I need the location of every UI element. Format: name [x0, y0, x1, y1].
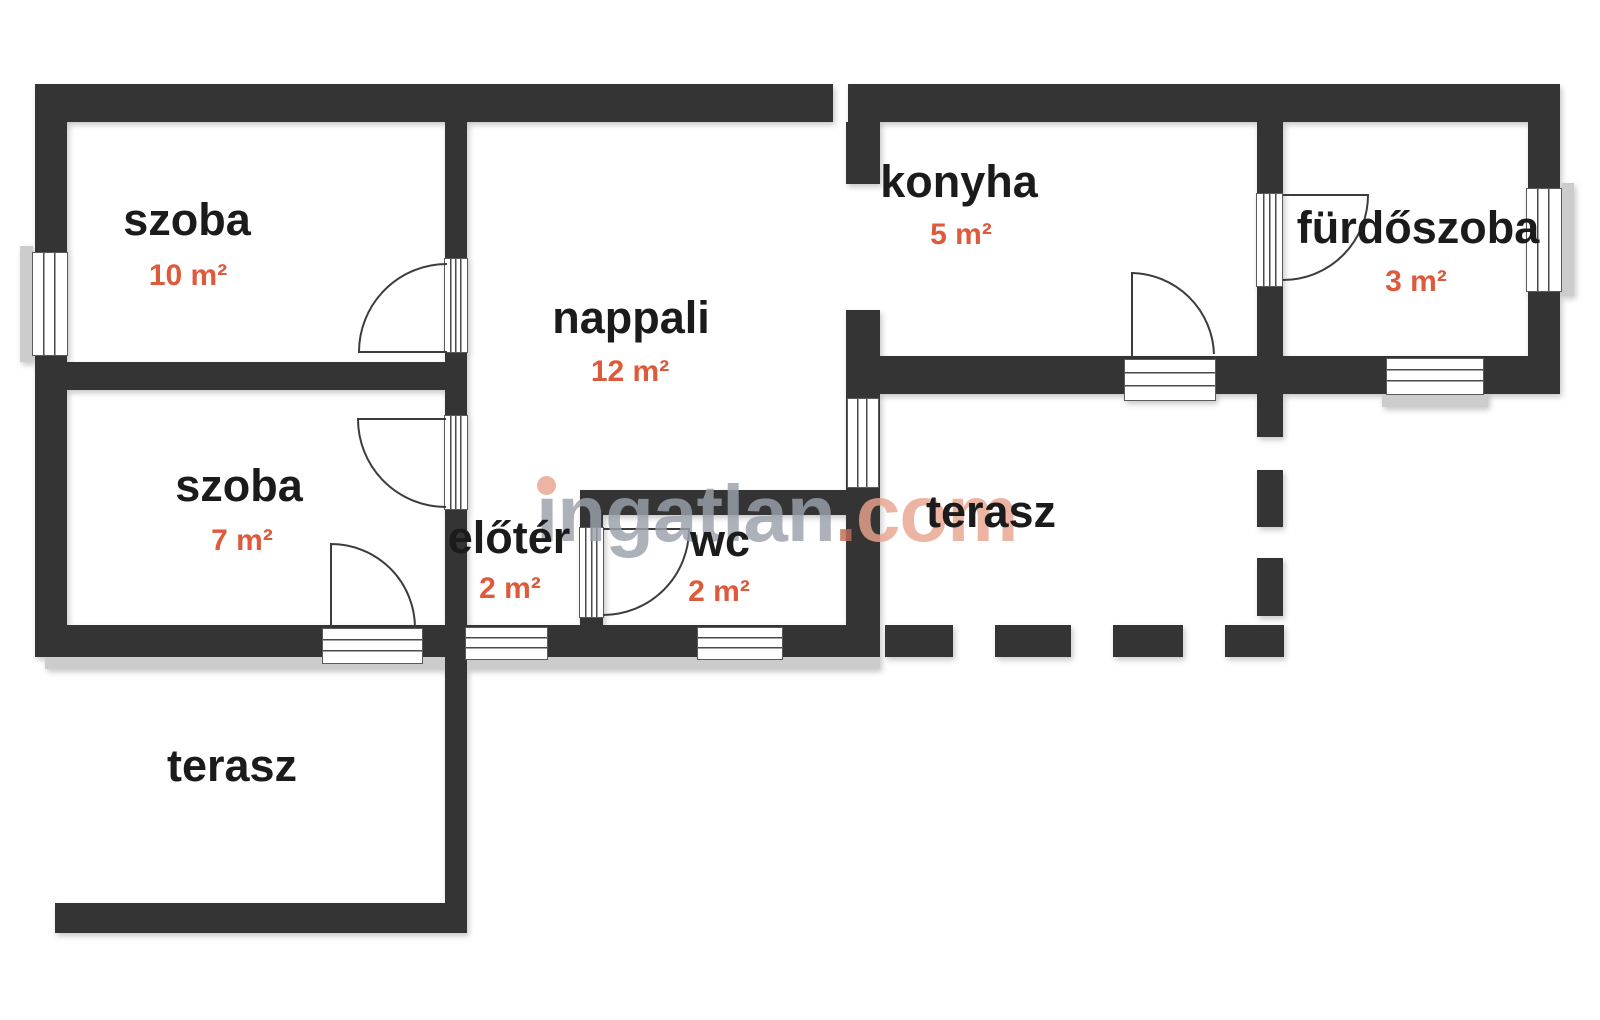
room-label-furdoszoba: fürdőszoba [1297, 202, 1540, 254]
room-area-szoba-7: 7 m² [211, 524, 273, 558]
room-area-furdoszoba: 3 m² [1385, 265, 1447, 299]
room-area-nappali: 12 m² [591, 355, 669, 389]
room-label-eloter: előtér [448, 512, 571, 564]
room-label-szoba-10: szoba [123, 194, 251, 246]
floor-plan: ingatlan.com szoba 10 m² nappali 12 m² k… [0, 0, 1600, 1020]
room-area-wc: 2 m² [688, 575, 750, 609]
room-label-terasz-left: terasz [167, 740, 297, 792]
room-area-konyha: 5 m² [930, 218, 992, 252]
labels-layer: szoba 10 m² nappali 12 m² konyha 5 m² fü… [0, 0, 1600, 1020]
room-area-eloter: 2 m² [479, 572, 541, 606]
room-area-szoba-10: 10 m² [149, 259, 227, 293]
room-label-wc: wc [690, 515, 750, 567]
room-label-nappali: nappali [552, 292, 710, 344]
room-label-szoba-7: szoba [175, 460, 303, 512]
room-label-konyha: konyha [880, 156, 1038, 208]
room-label-terasz-right: terasz [926, 486, 1056, 538]
